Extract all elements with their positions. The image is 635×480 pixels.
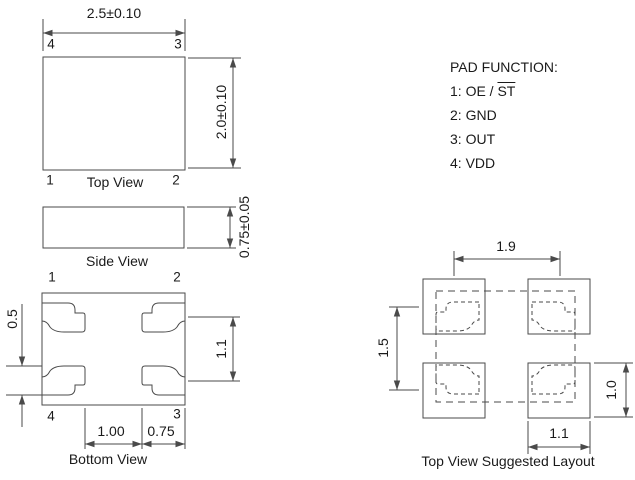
layout-land-pad-top-left [423, 279, 485, 334]
pad-function-item-1: 1: OE / ST [450, 79, 558, 103]
bottom-view-pin-4: 4 [47, 409, 55, 424]
bottom-view-gap-dimension: 1.00 [97, 423, 124, 439]
top-view-pin-2: 2 [172, 173, 180, 188]
layout-pad-outline-top-right [532, 302, 575, 331]
layout-label: Top View Suggested Layout [421, 453, 594, 469]
bottom-view-body [42, 293, 185, 405]
side-view-label: Side View [86, 253, 148, 269]
bottom-view-pitch-dimension: 1.1 [213, 339, 229, 358]
mechanical-drawing-page: 2.5±0.10 2.0±0.10 4 3 1 2 Top View 0.75±… [0, 0, 635, 480]
top-view-pin-4: 4 [47, 37, 55, 52]
layout-land-pad-bottom-left [423, 363, 485, 418]
bottom-view-pin-3: 3 [173, 407, 181, 422]
pad-function-title: PAD FUNCTION: [450, 55, 558, 79]
pad-function-item-4: 4: VDD [450, 151, 558, 175]
bottom-view-label: Bottom View [69, 451, 147, 467]
layout-pad-outline-bottom-right [532, 365, 575, 394]
top-view-body [43, 57, 185, 170]
side-view-height-dimension: 0.75±0.05 [236, 196, 252, 258]
layout-land-pad-top-right [528, 279, 590, 334]
bottom-view-pad-4 [42, 366, 85, 395]
top-view-label: Top View [87, 174, 144, 190]
bottom-view-pad-width-dimension: 0.75 [147, 423, 174, 439]
bottom-view-pad-1 [42, 303, 85, 332]
bottom-view-pad-3 [142, 366, 185, 395]
top-view-pin-1: 1 [46, 173, 54, 188]
layout-vertical-pitch-dimension: 1.5 [375, 338, 391, 357]
top-view-pin-3: 3 [174, 37, 182, 52]
layout-package-outline-dashed [436, 291, 575, 402]
pad-function-item-3: 3: OUT [450, 127, 558, 151]
overline-text: ST [497, 83, 515, 99]
pad-function-item-2: 2: GND [450, 103, 558, 127]
top-view-width-dimension: 2.5±0.10 [87, 5, 141, 21]
side-view-body [43, 207, 184, 248]
pad-function-block: PAD FUNCTION: 1: OE / ST 2: GND 3: OUT 4… [450, 55, 558, 175]
bottom-view-pin-1: 1 [48, 270, 56, 285]
bottom-view-pad-height-dimension: 0.5 [4, 309, 20, 328]
layout-pad-outline-bottom-left [436, 365, 479, 394]
bottom-view-pin-2: 2 [173, 270, 181, 285]
layout-pad-height-dimension: 1.0 [603, 380, 619, 399]
layout-pad-outline-top-left [436, 302, 479, 331]
layout-horizontal-pitch-dimension: 1.9 [496, 238, 515, 254]
bottom-view-pad-2 [142, 303, 185, 332]
layout-land-pad-bottom-right [528, 363, 590, 418]
layout-pad-width-dimension: 1.1 [549, 425, 568, 441]
top-view-height-dimension: 2.0±0.10 [213, 85, 229, 139]
